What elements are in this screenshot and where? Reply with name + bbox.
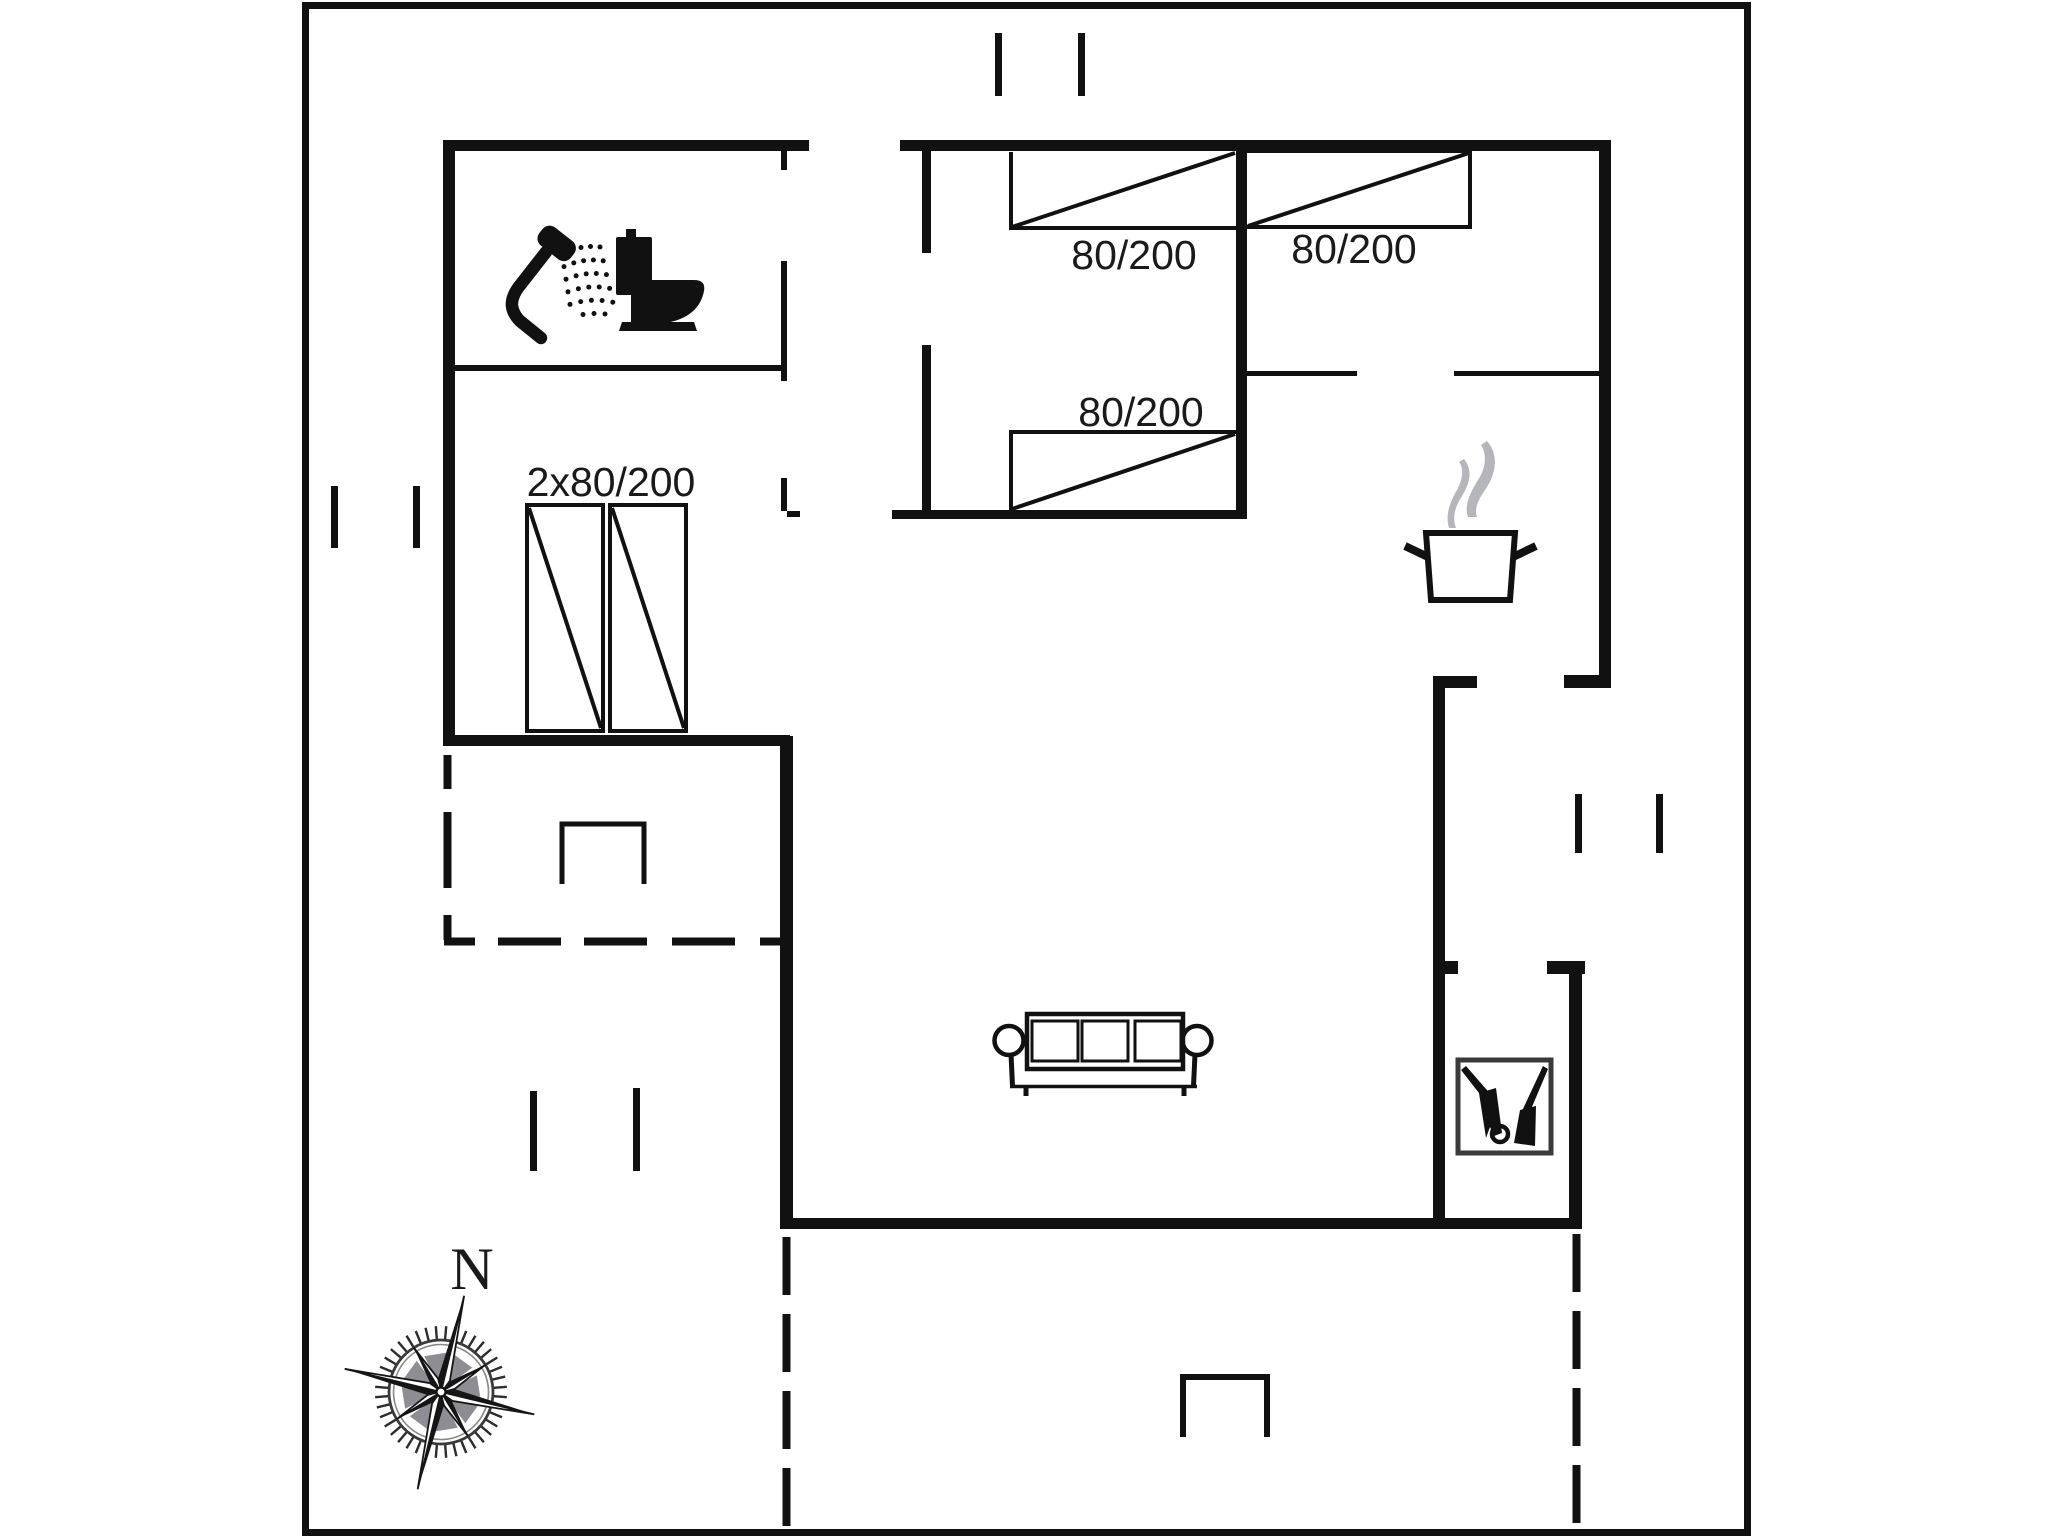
svg-text:80/200: 80/200	[1078, 389, 1203, 435]
svg-text:80/200: 80/200	[1291, 226, 1416, 272]
svg-text:80/200: 80/200	[1071, 232, 1196, 278]
svg-text:N: N	[450, 1236, 493, 1302]
svg-text:2x80/200: 2x80/200	[527, 459, 696, 505]
